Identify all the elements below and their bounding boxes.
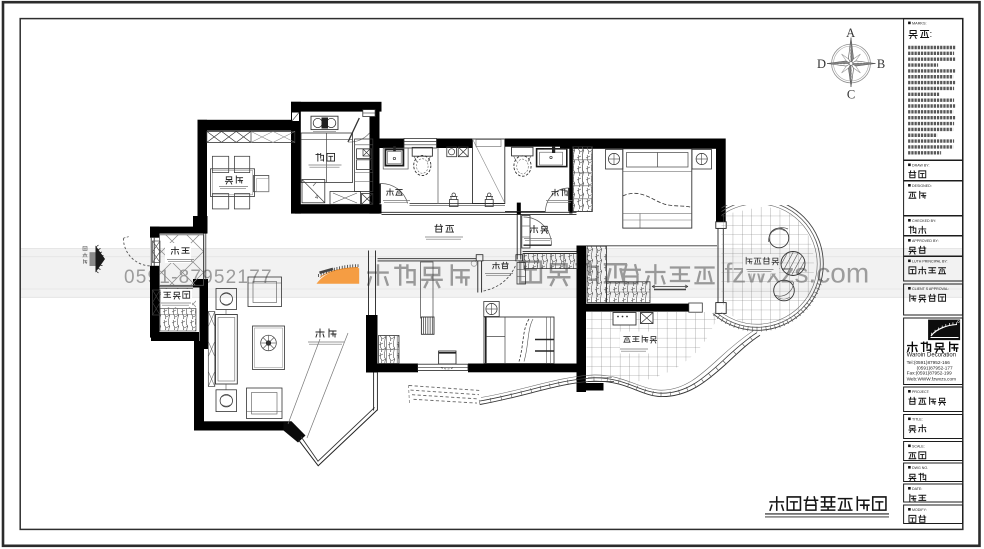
svg-text:DRAW BY:: DRAW BY: [912,163,929,167]
svg-text:CLIENT S APPROVAL:: CLIENT S APPROVAL: [912,287,949,291]
svg-text:PROJECT:: PROJECT: [912,390,930,394]
svg-text:DESIGNED:: DESIGNED: [912,184,932,188]
svg-text:Waroin Decoration: Waroin Decoration [907,353,956,359]
svg-text:CHECKED BY:: CHECKED BY: [912,219,936,223]
svg-text:4: 4 [315,195,318,201]
svg-text:C: C [847,88,855,102]
svg-text:A: A [846,26,855,40]
svg-text:D: D [817,57,826,71]
svg-text:DWG NO.: DWG NO. [912,466,928,470]
svg-text:DATE:: DATE: [912,487,922,491]
svg-text:TITLE:: TITLE: [912,417,923,421]
svg-text:B: B [877,57,885,71]
svg-text:MARKS:: MARKS: [912,22,927,26]
svg-text:SCALE:: SCALE: [912,444,925,448]
svg-text::: : [930,29,933,39]
svg-text:Tel:(0591)87952-166: Tel:(0591)87952-166 [907,360,951,365]
svg-text:LUTH PRINCIPAL BY:: LUTH PRINCIPAL BY: [912,259,948,263]
svg-text:APPROVED BY:: APPROVED BY: [912,239,939,243]
svg-text:MODIFY:: MODIFY: [912,508,927,512]
svg-text:(0591)87952-177: (0591)87952-177 [917,365,953,370]
svg-text:Fax:(0591)87952-199: Fax:(0591)87952-199 [907,371,952,376]
svg-text:Web:WWW.fzwxzs.com: Web:WWW.fzwxzs.com [907,377,956,382]
